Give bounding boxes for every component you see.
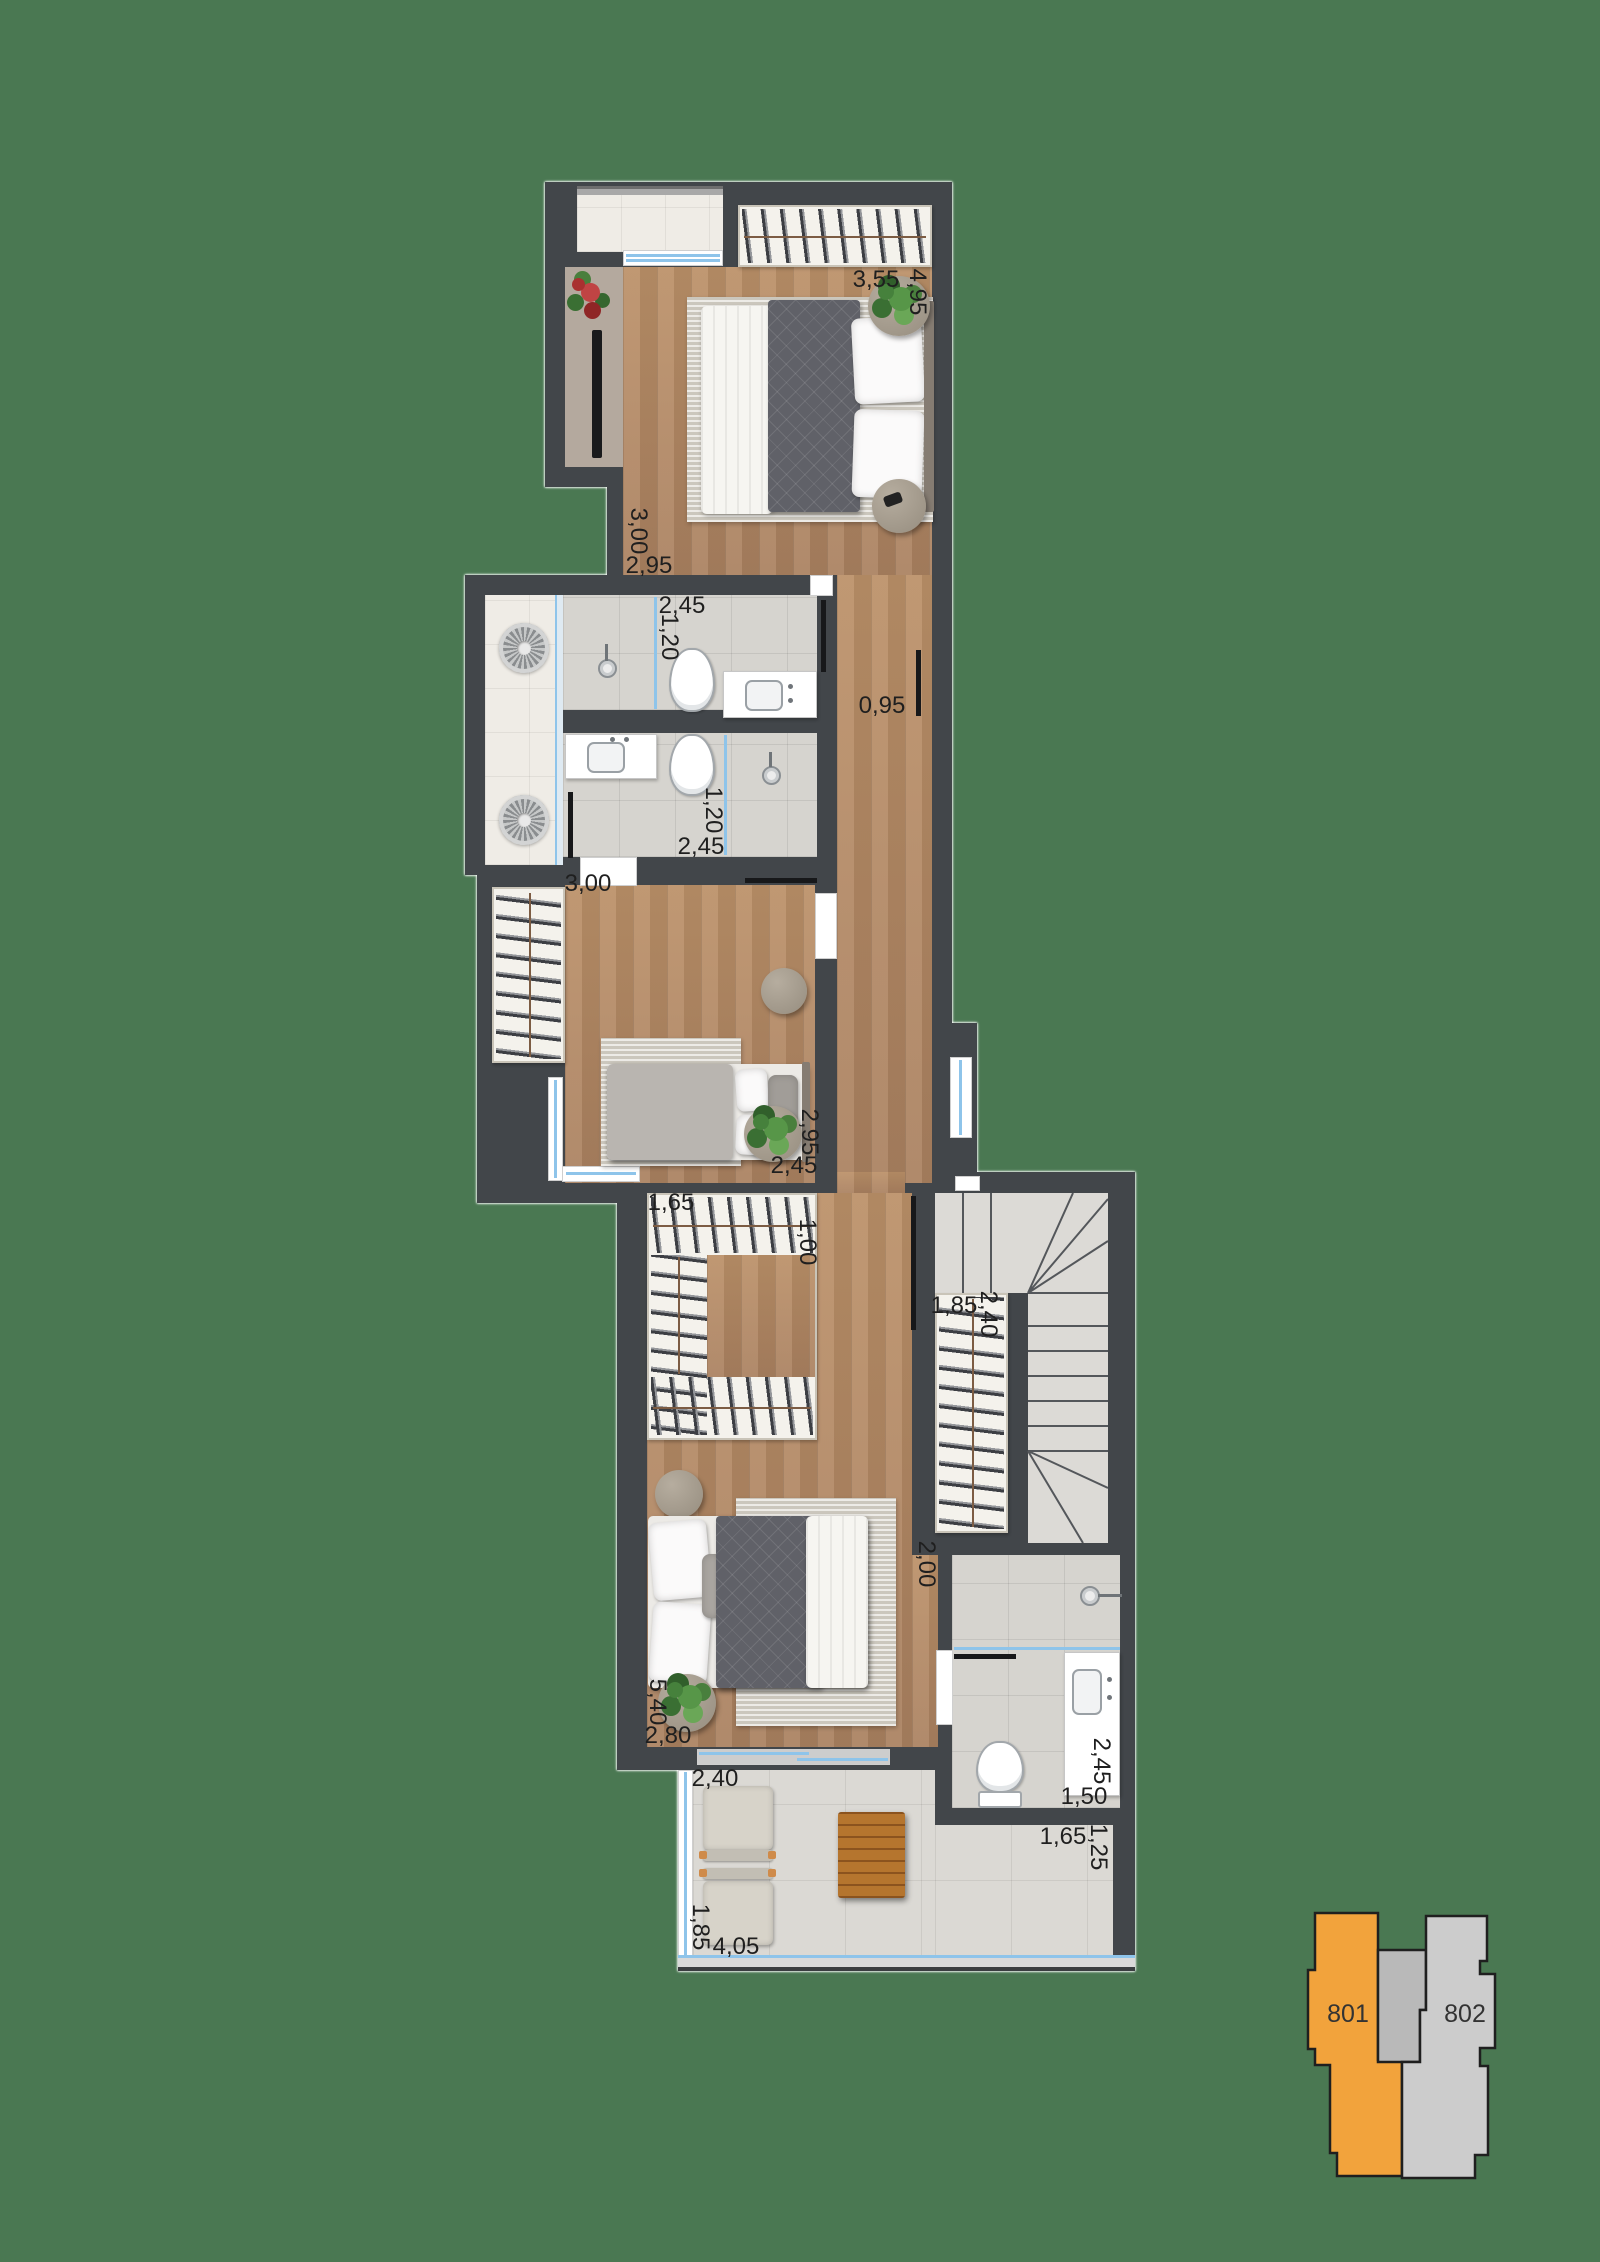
bedroom2-wardrobe: [492, 887, 565, 1063]
dim-label: 2,40: [976, 1291, 1000, 1338]
headboard: [924, 301, 934, 512]
sink-vanity: [723, 671, 817, 718]
bedroom2-window-v: [548, 1077, 563, 1181]
dim-label: 5,40: [645, 1679, 669, 1726]
keyplan: 801 802: [1285, 1862, 1600, 2262]
chair-tip: [699, 1851, 707, 1859]
dim-label: 2,45: [1089, 1738, 1113, 1785]
double-bed-duvet: [768, 300, 860, 512]
door-glass: [797, 1758, 888, 1761]
window-glass: [626, 254, 720, 257]
closet-rail: [678, 1257, 680, 1374]
stair-window: [955, 1176, 980, 1191]
plant-icon: [572, 278, 585, 291]
ventilation-fan-icon: [499, 623, 549, 673]
bed-blanket: [701, 306, 773, 514]
dim-label: 2,95: [797, 1109, 821, 1156]
keyplan-unit-802-label: 802: [1444, 2000, 1486, 2028]
faucet-icon: [788, 684, 793, 689]
dim-label: 1,20: [657, 614, 681, 661]
round-side-table: [655, 1470, 703, 1518]
shower-arm: [605, 644, 608, 661]
shower-glass: [954, 1647, 1120, 1650]
chair-tip: [699, 1869, 707, 1877]
dim-label: 1,65: [1040, 1825, 1087, 1849]
balcony-floor: [577, 195, 723, 252]
door-leaf: [911, 1196, 916, 1330]
door-leaf: [568, 792, 573, 858]
stair-flight: [1028, 1293, 1108, 1543]
dim-label: 1,65: [648, 1191, 695, 1215]
shower-head-icon: [598, 659, 617, 678]
closet-rail: [529, 893, 531, 1057]
bedroom2-window-h: [562, 1166, 640, 1182]
dim-label: 0,95: [859, 694, 906, 718]
faucet-icon: [788, 698, 793, 703]
sink-vanity: [565, 734, 657, 779]
dim-label: 1,85: [688, 1904, 712, 1951]
chair-tip: [768, 1869, 776, 1877]
bathroom3-door-gap: [936, 1650, 953, 1725]
window-glass: [959, 1060, 962, 1135]
chair-bar: [703, 1850, 773, 1861]
shower-arm: [1098, 1594, 1122, 1597]
corridor-window: [950, 1057, 972, 1138]
fan-hub: [517, 641, 531, 655]
faucet-icon: [1107, 1695, 1112, 1700]
bathroom1-door-gap: [810, 575, 833, 596]
master-sliding-door: [697, 1749, 890, 1765]
fan-hub: [517, 813, 531, 827]
dim-label: 4,05: [713, 1935, 760, 1959]
faucet-icon: [1107, 1677, 1112, 1682]
dim-label: 2,45: [678, 835, 725, 859]
balcony-window: [623, 250, 723, 266]
door-leaf: [745, 878, 817, 883]
window-glass: [626, 259, 720, 262]
dim-label: 1,25: [1086, 1824, 1110, 1871]
chair-tip: [768, 1851, 776, 1859]
sink-basin: [745, 680, 783, 711]
floor-plan-page: { "colors": {"background":"#4A7852","uni…: [0, 0, 1600, 2262]
master-closet-u: [647, 1193, 817, 1440]
dim-label: 1,00: [795, 1219, 819, 1266]
sink-basin: [1072, 1669, 1102, 1715]
window-glass: [554, 1080, 557, 1178]
closet-rail: [744, 236, 926, 238]
dim-label: 1,20: [701, 787, 725, 834]
dim-label: 2,80: [645, 1724, 692, 1748]
shaft-glazing: [555, 595, 563, 865]
closet-floor-notch: [707, 1255, 815, 1377]
bedroom2-door-gap: [815, 893, 837, 959]
dim-label: 1,50: [1061, 1785, 1108, 1809]
toilet: [976, 1741, 1024, 1793]
corridor-passage: [837, 1172, 905, 1193]
faucet-icon: [610, 737, 615, 742]
closet-rail: [653, 1407, 811, 1409]
dim-label: 2,95: [626, 554, 673, 578]
closet-rail: [653, 1225, 811, 1227]
stair-landing: [935, 1193, 1108, 1293]
dim-label: 2,40: [692, 1767, 739, 1791]
faucet-icon: [624, 737, 629, 742]
window-glass: [566, 1172, 636, 1175]
round-side-table: [872, 479, 926, 533]
hangers-icon: [651, 1377, 813, 1435]
dim-label: 2,00: [914, 1541, 938, 1588]
dim-label: 3,00: [626, 508, 650, 555]
shower-head-icon: [1080, 1586, 1100, 1606]
dim-label: 4,95: [905, 269, 929, 316]
lounge-chair: [703, 1786, 773, 1850]
closet-rail: [972, 1299, 974, 1527]
door-leaf: [916, 650, 921, 716]
dim-label: 3,00: [565, 872, 612, 896]
shower-head-icon: [762, 766, 781, 785]
dim-label: 1,85: [931, 1294, 978, 1318]
plant-icon: [753, 1114, 769, 1130]
keyplan-unit-801-label: 801: [1327, 2000, 1369, 2028]
ventilation-fan-icon: [499, 795, 549, 845]
shower-arm: [769, 752, 772, 767]
pillow: [735, 1068, 770, 1112]
single-bed-duvet: [607, 1064, 733, 1160]
wooden-table: [838, 1812, 905, 1898]
sink-basin: [587, 742, 625, 773]
suite-closet: [738, 205, 932, 267]
round-side-table: [761, 968, 807, 1014]
tv-icon: [592, 330, 602, 458]
terrace-right-wall: [1113, 1825, 1135, 1963]
bed-blanket: [806, 1516, 868, 1688]
door-leaf: [821, 600, 826, 672]
dim-label: 3,55: [853, 268, 900, 292]
door-leaf: [954, 1654, 1016, 1659]
dim-label: 2,45: [771, 1154, 818, 1178]
door-glass: [699, 1752, 809, 1755]
chair-bar: [703, 1868, 773, 1879]
toilet-tank: [978, 1791, 1022, 1808]
